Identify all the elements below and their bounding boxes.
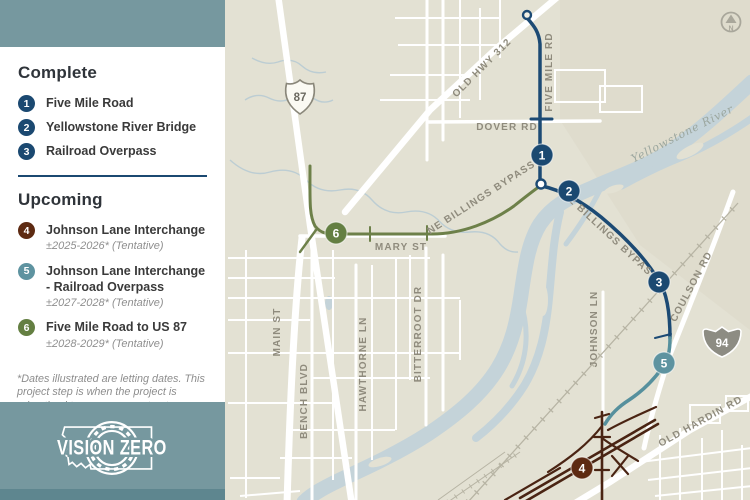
legend-badge-6: 6 [18,319,35,336]
legend-badge-5: 5 [18,263,35,280]
label-five-mile-rd: FIVE MILE RD [544,32,555,111]
legend-badge-1: 1 [18,95,35,112]
legend-item-johnson-lane-interchange: 4 Johnson Lane Interchange ±2025-2026* (… [18,222,209,254]
svg-text:2: 2 [566,185,573,199]
map-marker-4: 4 [571,457,593,479]
legend-dates: ±2025-2026* (Tentative) [46,239,205,253]
svg-text:1: 1 [539,149,546,163]
legend-item-five-mile-to-us87: 6 Five Mile Road to US 87 ±2028-2029* (T… [18,319,209,351]
legend-divider [18,175,207,177]
map-marker-1: 1 [531,144,553,166]
vision-zero-project-map: OLD HWY 312 DOVER RD FIVE MILE RD NE BIL… [0,0,750,500]
map-marker-6: 6 [325,222,347,244]
upcoming-section-title: Upcoming [18,190,209,210]
legend-badge-4: 4 [18,222,35,239]
label-bitterroot-dr: BITTERROOT DR [413,286,424,383]
legend-dates: ±2028-2029* (Tentative) [46,337,187,351]
label-main-st: MAIN ST [272,308,283,357]
legend-item-yellowstone-river-bridge: 2 Yellowstone River Bridge [18,119,209,136]
legend-item-five-mile-road: 1 Five Mile Road [18,95,209,112]
legend-item-railroad-overpass: 3 Railroad Overpass [18,143,209,160]
map-marker-3: 3 [648,271,670,293]
panel-footer: VISION ZERO [0,402,225,500]
complete-section-title: Complete [18,63,209,83]
legend-label-text: Johnson Lane Interchange [46,223,205,237]
us-87-number: 87 [294,92,307,104]
svg-text:5: 5 [661,357,668,371]
label-hawthorne-ln: HAWTHORNE LN [358,317,369,412]
legend-label: Railroad Overpass [46,143,156,159]
label-mary-st: MARY ST [375,242,427,253]
legend-label: Johnson Lane Interchange - Railroad Over… [46,263,209,311]
svg-text:3: 3 [656,276,663,290]
svg-text:6: 6 [333,227,340,241]
i-94-number: 94 [716,338,729,350]
legend-label: Yellowstone River Bridge [46,119,196,135]
legend-panel: Complete 1 Five Mile Road 2 Yellowstone … [0,0,225,500]
label-bench-blvd: BENCH BLVD [299,363,310,439]
logo-text: VISION ZERO [57,436,167,459]
label-johnson-ln: JOHNSON LN [589,291,600,368]
legend-dates: ±2027-2028* (Tentative) [46,296,209,310]
legend-badge-3: 3 [18,143,35,160]
footer-accent-strip [0,489,225,500]
legend-label: Five Mile Road to US 87 ±2028-2029* (Ten… [46,319,187,351]
svg-text:4: 4 [579,462,586,476]
panel-header-band [0,0,225,47]
map-marker-5: 5 [653,352,675,374]
label-dover-rd: DOVER RD [476,122,538,133]
legend-label-text: Five Mile Road to US 87 [46,320,187,334]
vision-zero-logo: VISION ZERO [47,417,179,479]
legend-label-text: Johnson Lane Interchange - Railroad Over… [46,264,205,294]
roundabout-node [523,11,531,19]
junction-node [537,180,546,189]
legend-label: Five Mile Road [46,95,134,111]
legend-label: Johnson Lane Interchange ±2025-2026* (Te… [46,222,205,254]
legend-item-johnson-lane-railroad-overpass: 5 Johnson Lane Interchange - Railroad Ov… [18,263,209,311]
legend-badge-2: 2 [18,119,35,136]
north-label: N [728,26,733,33]
map-marker-2: 2 [558,180,580,202]
